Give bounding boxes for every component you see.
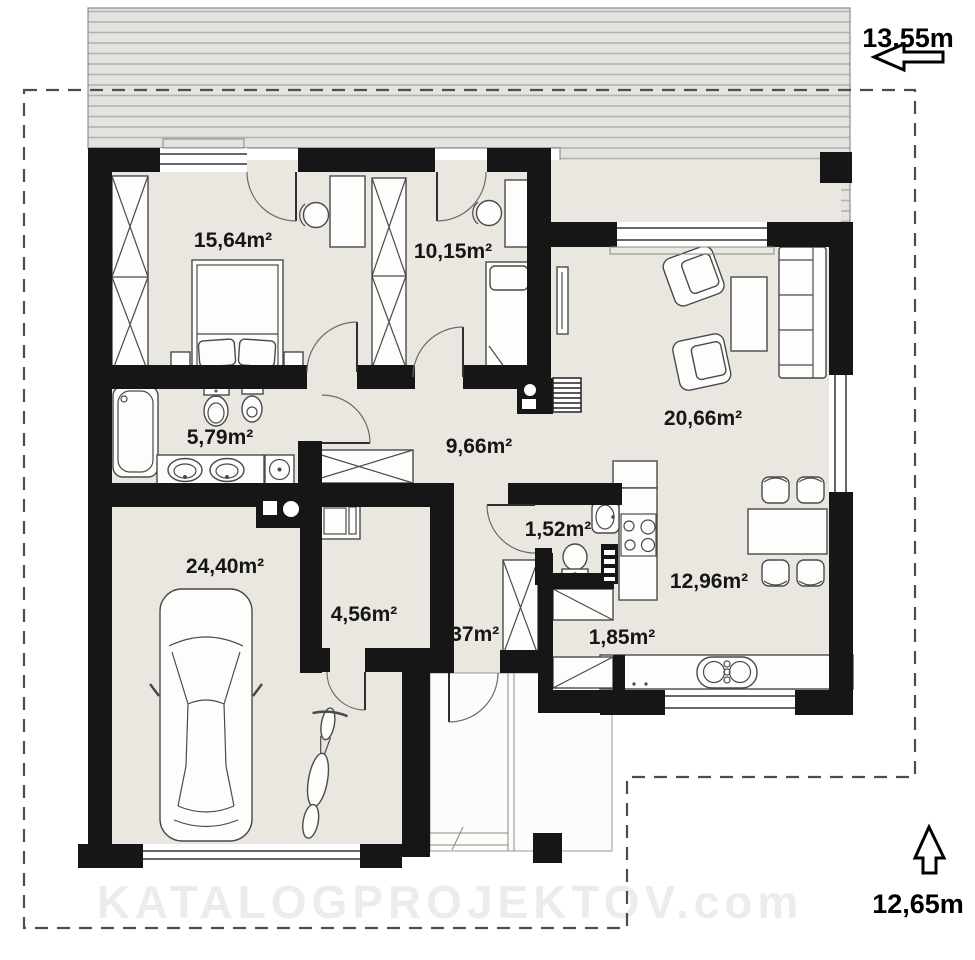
- vent-shaft-symbol: [553, 378, 581, 412]
- bathtub-symbol: [113, 386, 158, 477]
- car-symbol: [150, 589, 262, 841]
- sofa-symbol: [779, 247, 826, 378]
- single-bed-symbol: [486, 262, 532, 368]
- room-label-bathroom: 5,79m²: [187, 426, 254, 449]
- dimension-top: 13,55m: [862, 23, 954, 70]
- coffee-table-symbol: [731, 277, 767, 351]
- bidet-symbol: [242, 386, 263, 422]
- room-label-pantry: 1,85m²: [589, 626, 656, 649]
- room-label-living: 20,66m²: [664, 407, 742, 430]
- room-label-utility: 4,56m²: [331, 603, 398, 626]
- bottom-counter-sink-symbol: [600, 655, 853, 689]
- room-label-garage: 24,40m²: [186, 555, 264, 578]
- washing-machine-symbol: [265, 455, 294, 484]
- wc-sink-symbol: [592, 502, 619, 533]
- width-dimension-label: 13,55m: [862, 23, 954, 53]
- arrow-up-icon: [915, 827, 944, 873]
- tv-symbol: [557, 267, 568, 334]
- room-label-bedroom1: 15,64m²: [194, 229, 272, 252]
- chimney-symbol: [256, 495, 306, 528]
- room-label-bedroom2: 10,15m²: [414, 240, 492, 263]
- floor-plan-canvas: KATALOGPROJEKTOV.com 15,64m² 10,15m² 5,7…: [0, 0, 975, 960]
- vanity-sinks-symbol: [157, 455, 264, 485]
- porch-post: [533, 833, 562, 863]
- room-label-kitchen: 12,96m²: [670, 570, 748, 593]
- dimension-side: 12,65m: [872, 827, 964, 919]
- room-label-entry: 3,37m²: [433, 623, 500, 646]
- wardrobe-symbol: [112, 176, 148, 372]
- room-label-wc: 1,52m²: [525, 518, 592, 541]
- watermark-text: KATALOGPROJEKTOV.com: [97, 876, 804, 928]
- armchair-symbol: [671, 332, 732, 392]
- chimney-symbol: [517, 378, 553, 414]
- wardrobe-symbol: [503, 560, 538, 655]
- wardrobe-symbol: [372, 178, 406, 368]
- room-label-hall: 9,66m²: [446, 435, 513, 458]
- floor-plan-page: KATALOGPROJEKTOV.com 15,64m² 10,15m² 5,7…: [0, 0, 975, 960]
- depth-dimension-label: 12,65m: [872, 889, 964, 919]
- toilet-symbol: [204, 386, 229, 426]
